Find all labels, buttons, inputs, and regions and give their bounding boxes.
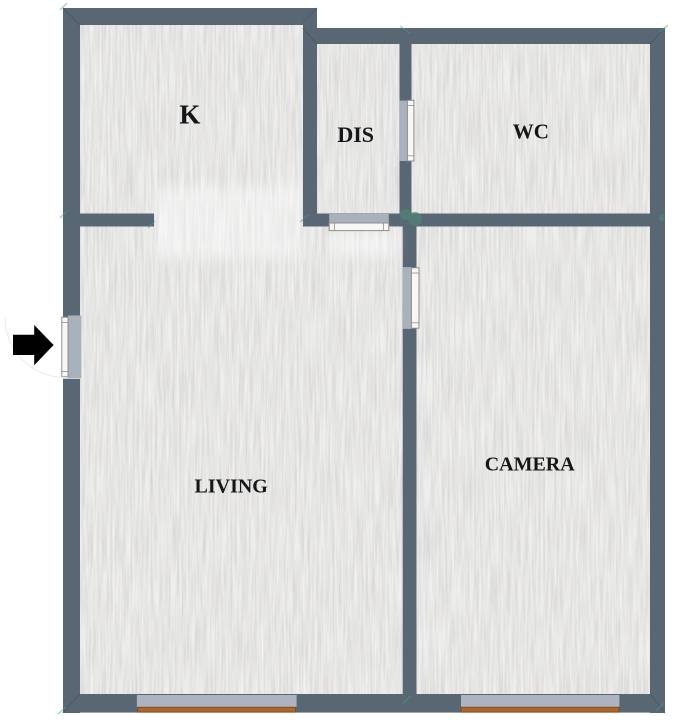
svg-text:CAMERA: CAMERA xyxy=(485,453,576,475)
svg-text:DIS: DIS xyxy=(337,122,374,147)
svg-text:WC: WC xyxy=(513,120,549,144)
svg-text:K: K xyxy=(179,99,200,129)
svg-text:LIVING: LIVING xyxy=(195,476,269,498)
